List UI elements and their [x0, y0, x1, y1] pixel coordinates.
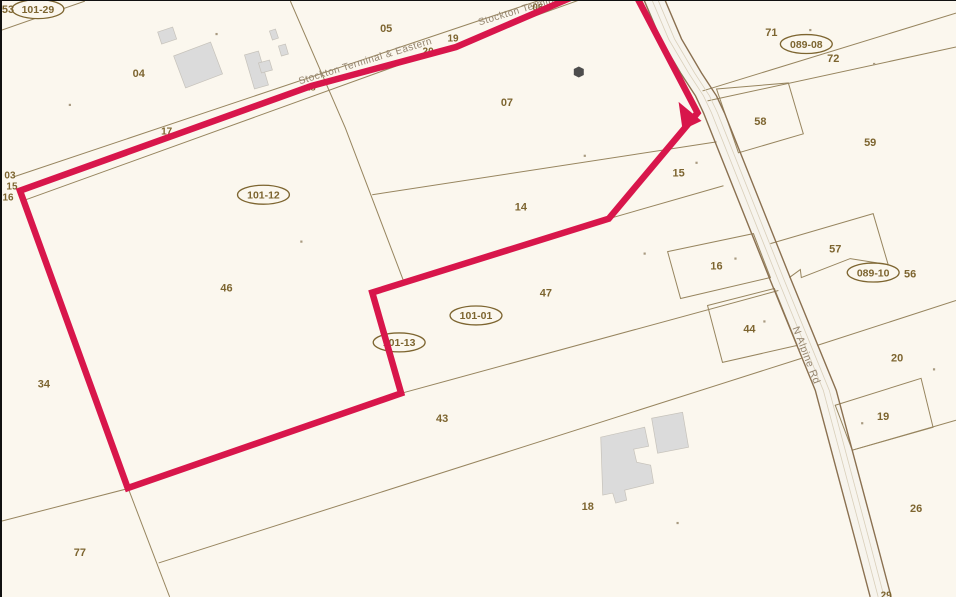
survey-marker-dot — [873, 63, 875, 65]
parcel-number-label: 16 — [2, 192, 14, 203]
survey-marker-dot — [69, 104, 71, 106]
parcel-number-label: 56 — [904, 269, 916, 281]
parcel-number-label: 03 — [4, 170, 16, 181]
survey-marker-dot — [644, 252, 646, 254]
parcel-number-label: 07 — [501, 97, 513, 109]
parcel-id-oval-label: 089-10 — [857, 268, 890, 279]
parcel-number-label: 77 — [74, 547, 86, 559]
parcel-number-label: 20 — [891, 352, 903, 364]
parcel-id-oval-label: 101-01 — [460, 311, 493, 322]
parcel-number-label: 05 — [380, 23, 392, 35]
parcel-number-label: 46 — [220, 282, 232, 294]
parcel-number-label: 18 — [582, 501, 594, 513]
parcel-number-label: 47 — [540, 287, 552, 299]
parcel-number-label: 14 — [515, 202, 528, 214]
survey-marker-dot — [695, 162, 697, 164]
survey-marker-dot — [584, 155, 586, 157]
survey-marker-dot — [933, 368, 935, 370]
parcel-number-label: 57 — [829, 244, 841, 256]
parcel-id-oval-label: 101-12 — [247, 191, 280, 202]
building-footprint — [652, 412, 689, 453]
parcel-map-canvas[interactable]: 101-29089-08101-12089-10101-01101-135304… — [2, 1, 956, 597]
parcel-number-label: 26 — [910, 503, 922, 515]
parcel-number-label: 71 — [765, 27, 777, 39]
survey-marker-dot — [734, 257, 736, 259]
map-viewport: 101-29089-08101-12089-10101-01101-135304… — [0, 0, 956, 597]
parcel-id-oval-label: 089-08 — [790, 40, 823, 51]
survey-marker-dot — [215, 33, 217, 35]
survey-marker-dot — [809, 29, 811, 31]
parcel-number-label: 15 — [672, 168, 684, 180]
parcel-number-label: 34 — [38, 378, 51, 390]
parcel-number-label: 44 — [743, 323, 756, 335]
map-background — [2, 1, 956, 597]
parcel-number-label: 29 — [881, 590, 893, 597]
parcel-number-label: 58 — [754, 116, 766, 128]
survey-marker-dot — [676, 522, 678, 524]
parcel-number-label: 43 — [436, 413, 448, 425]
parcel-number-label: 72 — [827, 53, 839, 65]
parcel-id-oval-label: 101-29 — [22, 5, 55, 16]
parcel-number-label: 16 — [710, 261, 722, 273]
parcel-number-label: 15 — [6, 181, 18, 192]
survey-marker-dot — [861, 422, 863, 424]
parcel-number-label: 59 — [864, 137, 876, 149]
survey-marker-dot — [763, 320, 765, 322]
parcel-number-label: 53 — [2, 4, 14, 16]
parcel-number-label: 19 — [877, 411, 889, 423]
parcel-number-label: 04 — [133, 68, 146, 80]
survey-marker-dot — [300, 241, 302, 243]
